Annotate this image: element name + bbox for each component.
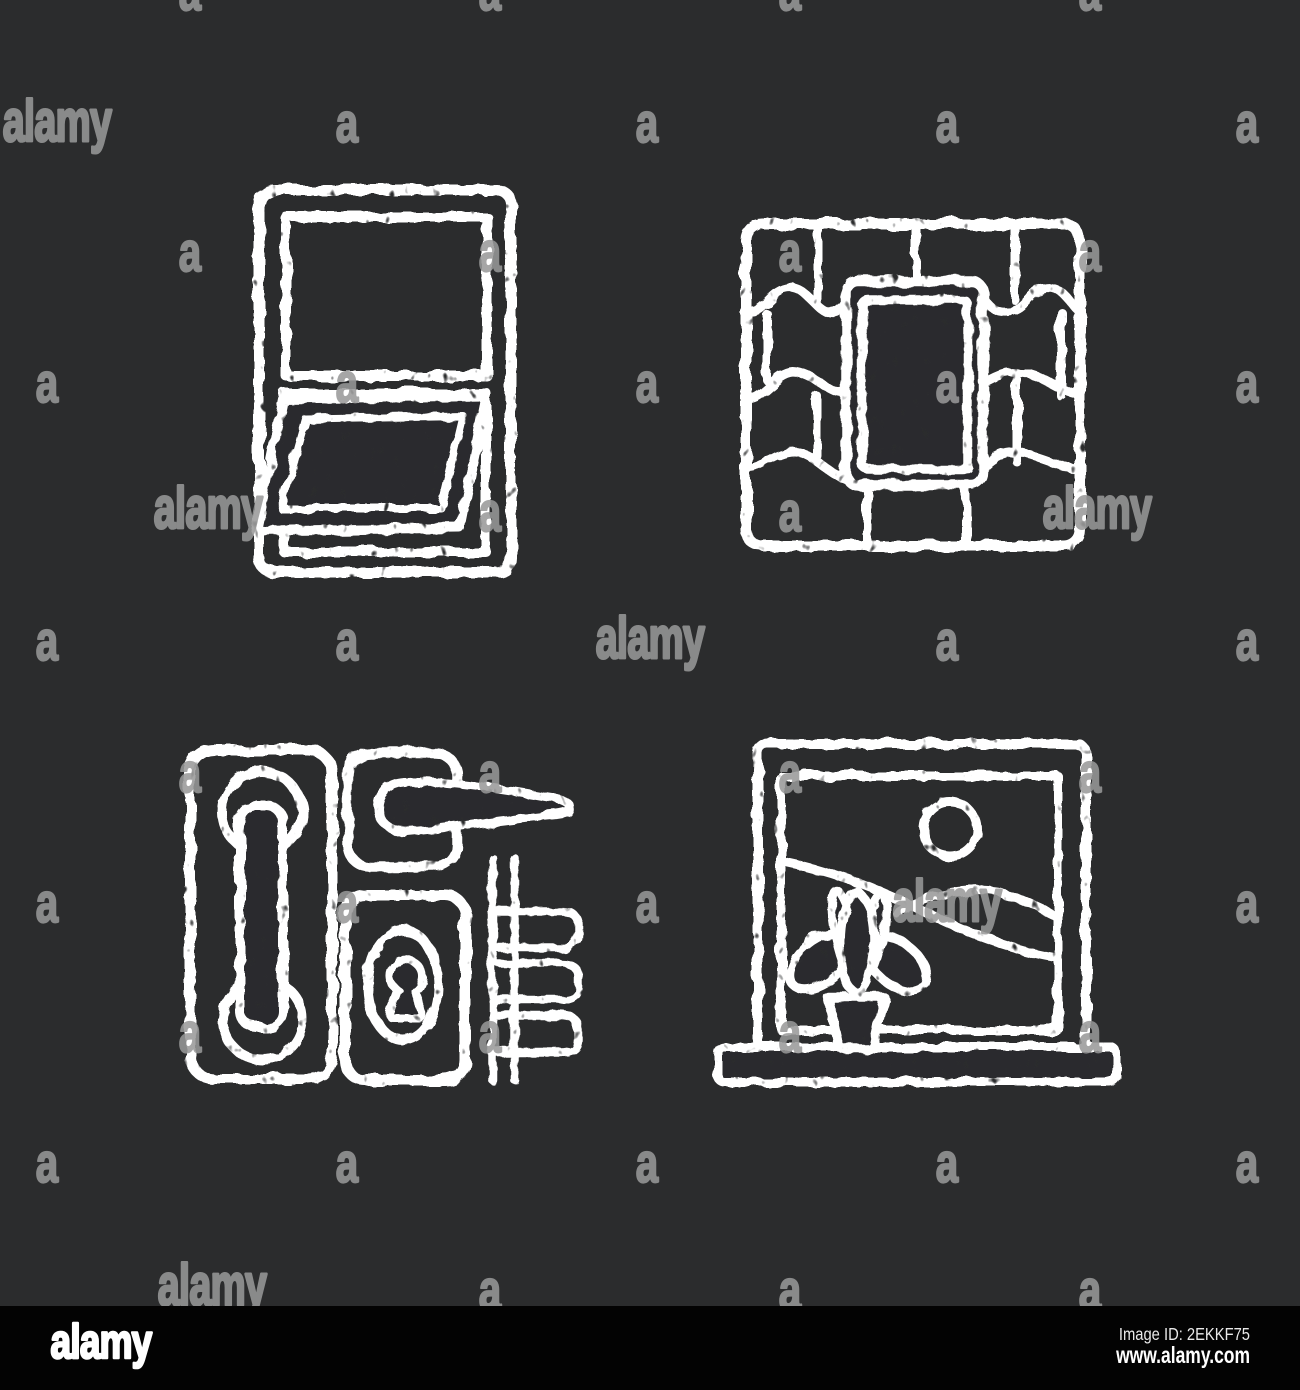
svg-text:alamy: alamy bbox=[1043, 475, 1152, 540]
svg-text:a: a bbox=[1236, 93, 1259, 155]
svg-text:a: a bbox=[779, 1003, 802, 1065]
svg-text:a: a bbox=[336, 93, 359, 155]
svg-text:a: a bbox=[179, 222, 202, 284]
svg-text:a: a bbox=[779, 482, 802, 544]
svg-text:a: a bbox=[336, 353, 359, 415]
svg-text:a: a bbox=[179, 1003, 202, 1065]
svg-text:a: a bbox=[779, 743, 802, 805]
svg-text:a: a bbox=[936, 1133, 959, 1195]
svg-text:a: a bbox=[336, 611, 359, 673]
svg-text:a: a bbox=[36, 1133, 59, 1195]
svg-text:alamy: alamy bbox=[596, 605, 705, 670]
svg-text:a: a bbox=[936, 353, 959, 415]
svg-text:www.alamy.com: www.alamy.com bbox=[1115, 1344, 1250, 1369]
svg-text:a: a bbox=[936, 611, 959, 673]
svg-text:alamy: alamy bbox=[893, 868, 1002, 933]
svg-text:a: a bbox=[479, 222, 502, 284]
svg-text:a: a bbox=[336, 873, 359, 935]
svg-text:alamy: alamy bbox=[154, 475, 263, 540]
svg-text:a: a bbox=[636, 1133, 659, 1195]
svg-text:a: a bbox=[1236, 611, 1259, 673]
svg-text:Image ID: 2EKKF75: Image ID: 2EKKF75 bbox=[1119, 1325, 1250, 1345]
svg-text:a: a bbox=[1236, 1133, 1259, 1195]
svg-text:a: a bbox=[636, 93, 659, 155]
svg-text:a: a bbox=[179, 743, 202, 805]
svg-text:a: a bbox=[1079, 1003, 1102, 1065]
svg-text:a: a bbox=[1079, 743, 1102, 805]
svg-text:a: a bbox=[36, 873, 59, 935]
svg-text:a: a bbox=[1236, 353, 1259, 415]
svg-text:a: a bbox=[1079, 0, 1102, 23]
svg-text:a: a bbox=[479, 482, 502, 544]
svg-text:a: a bbox=[36, 353, 59, 415]
svg-text:a: a bbox=[779, 222, 802, 284]
svg-text:a: a bbox=[36, 611, 59, 673]
svg-text:a: a bbox=[336, 1133, 359, 1195]
svg-text:a: a bbox=[479, 0, 502, 23]
svg-text:a: a bbox=[1236, 873, 1259, 935]
svg-text:a: a bbox=[1079, 222, 1102, 284]
svg-text:alamy: alamy bbox=[3, 88, 112, 153]
svg-text:a: a bbox=[479, 743, 502, 805]
svg-text:a: a bbox=[479, 1003, 502, 1065]
svg-text:alamy: alamy bbox=[51, 1315, 153, 1369]
svg-text:a: a bbox=[936, 93, 959, 155]
svg-text:a: a bbox=[636, 873, 659, 935]
svg-text:a: a bbox=[779, 0, 802, 23]
svg-text:a: a bbox=[179, 0, 202, 23]
svg-text:a: a bbox=[636, 353, 659, 415]
